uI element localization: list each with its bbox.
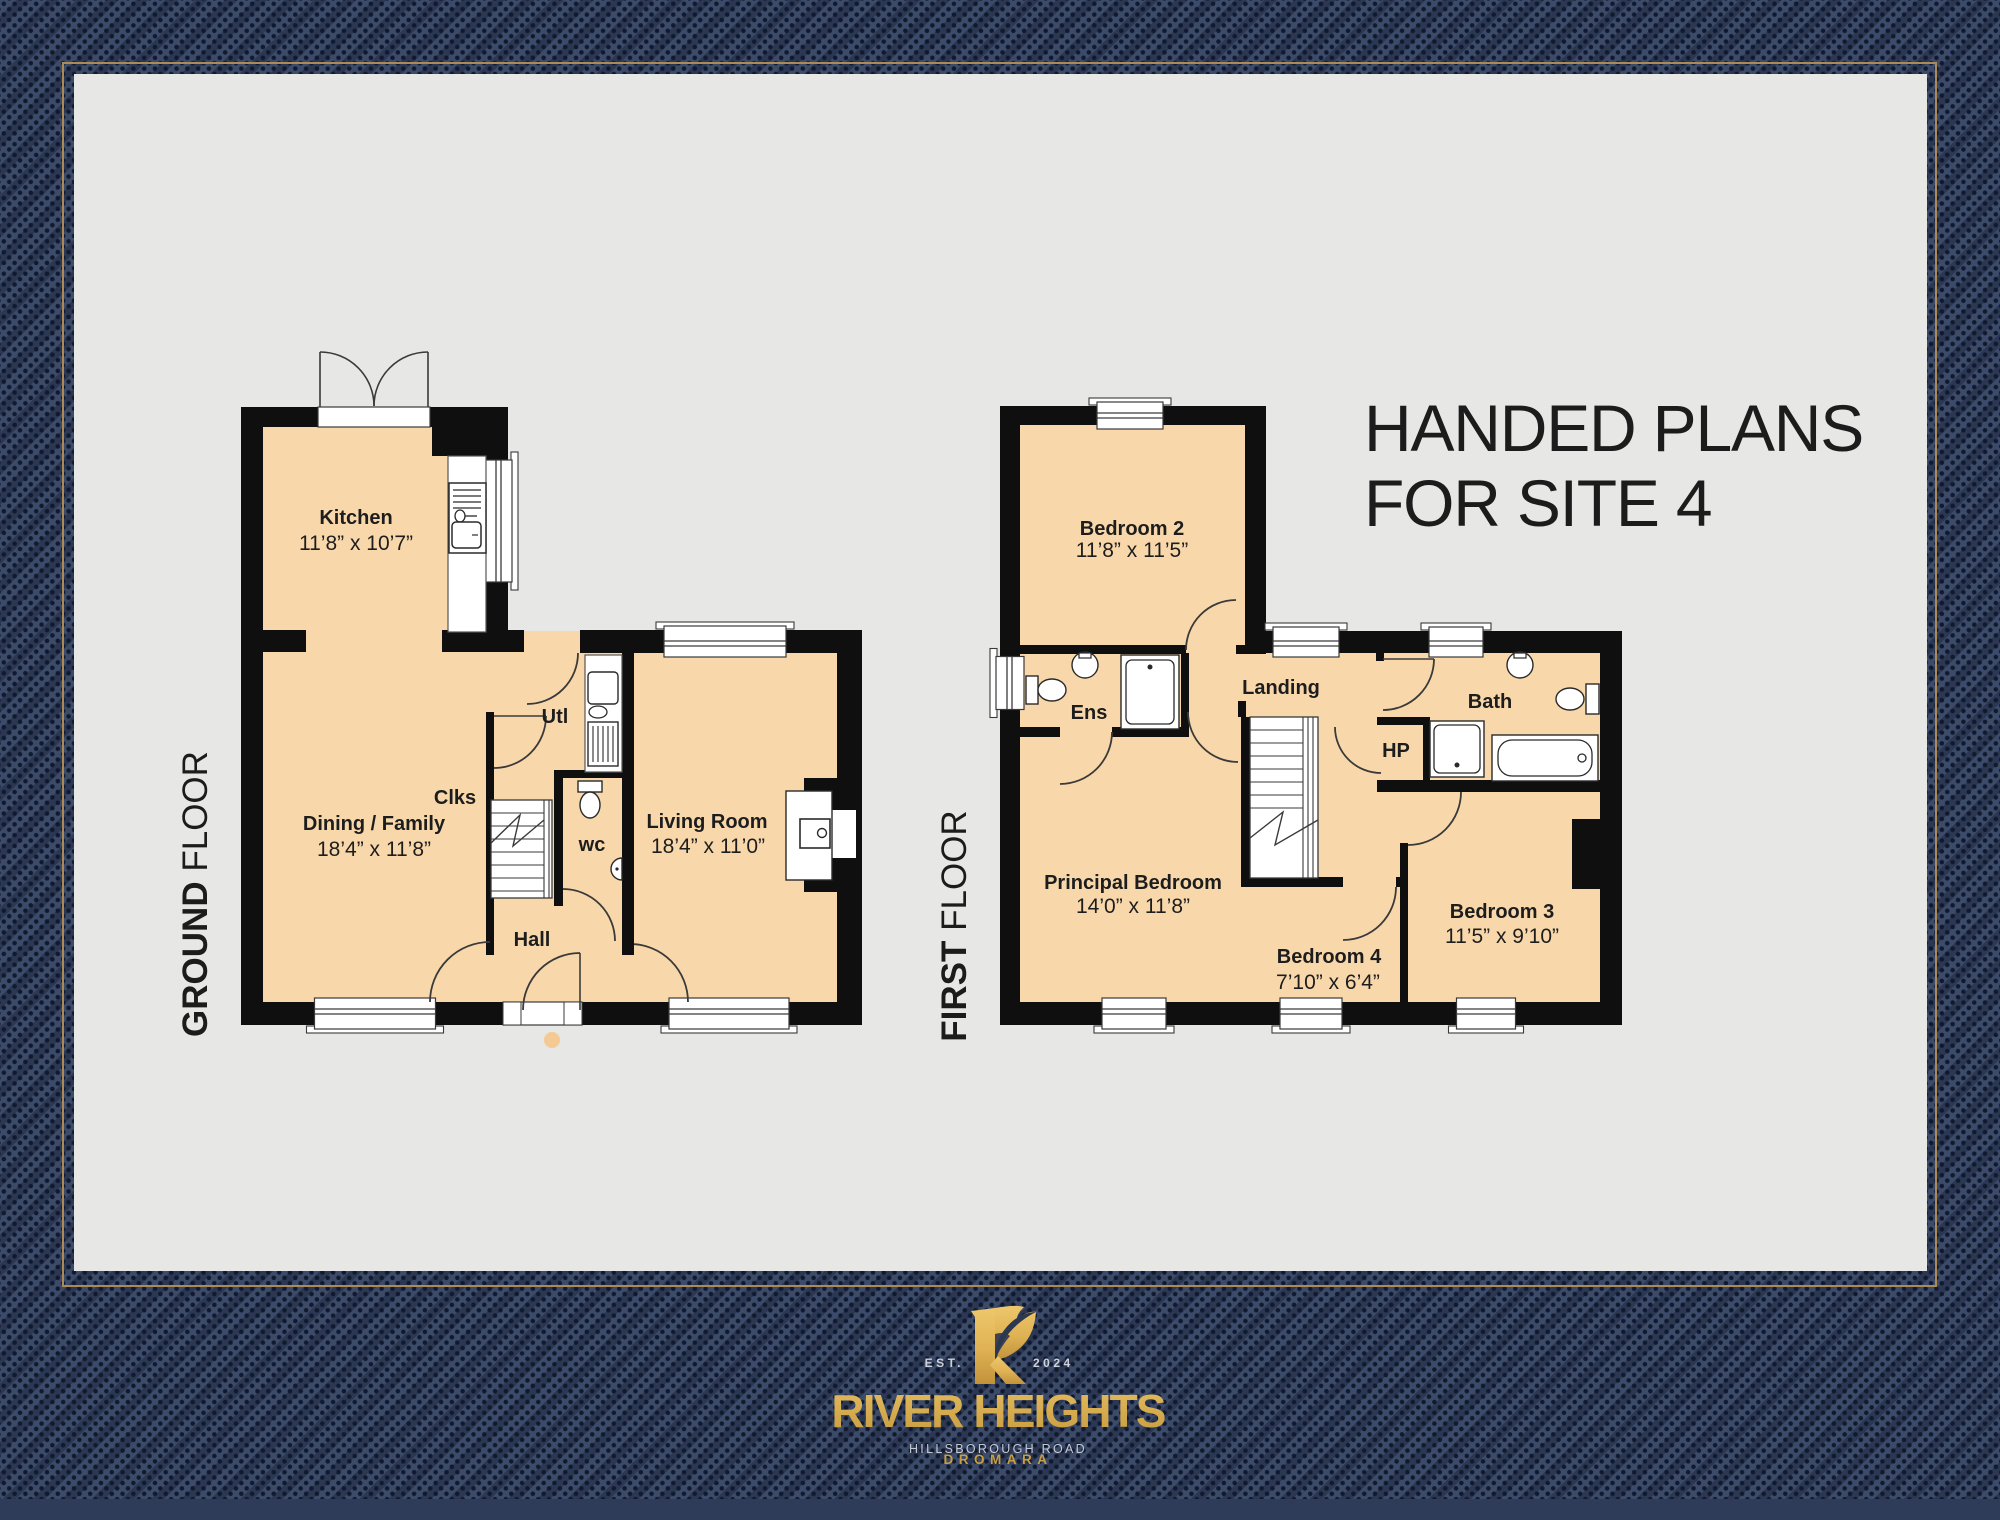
svg-text:7’10” x 6’4”: 7’10” x 6’4”	[1276, 971, 1380, 994]
svg-text:RIVER HEIGHTS: RIVER HEIGHTS	[831, 1385, 1164, 1437]
svg-text:Utl: Utl	[542, 706, 569, 728]
svg-text:wc: wc	[578, 834, 606, 856]
svg-text:18’4” x 11’0”: 18’4” x 11’0”	[651, 835, 765, 858]
svg-text:Dining / Family: Dining / Family	[303, 813, 446, 835]
svg-text:Bedroom 4: Bedroom 4	[1277, 946, 1382, 968]
svg-text:Bedroom 2: Bedroom 2	[1080, 518, 1184, 540]
svg-text:Bath: Bath	[1468, 691, 1512, 713]
svg-text:11’5” x 9’10”: 11’5” x 9’10”	[1445, 925, 1559, 948]
svg-text:DROMARA: DROMARA	[944, 1452, 1053, 1467]
svg-text:14’0” x 11’8”: 14’0” x 11’8”	[1076, 895, 1190, 918]
svg-text:11’8” x 10’7”: 11’8” x 10’7”	[299, 532, 413, 555]
svg-text:Kitchen: Kitchen	[319, 507, 392, 529]
svg-text:Bedroom 3: Bedroom 3	[1450, 901, 1554, 923]
svg-text:Principal Bedroom: Principal Bedroom	[1044, 872, 1222, 894]
svg-text:18’4” x 11’8”: 18’4” x 11’8”	[317, 838, 431, 861]
svg-text:Landing: Landing	[1242, 677, 1320, 699]
svg-text:11’8” x 11’5”: 11’8” x 11’5”	[1076, 539, 1188, 562]
svg-text:HP: HP	[1382, 740, 1410, 762]
svg-text:2024: 2024	[1033, 1356, 1074, 1370]
svg-text:Clks: Clks	[434, 787, 476, 809]
svg-text:Ens: Ens	[1071, 702, 1108, 724]
svg-text:Hall: Hall	[514, 929, 551, 951]
svg-text:EST.: EST.	[925, 1356, 964, 1370]
svg-text:Living Room: Living Room	[646, 811, 767, 833]
